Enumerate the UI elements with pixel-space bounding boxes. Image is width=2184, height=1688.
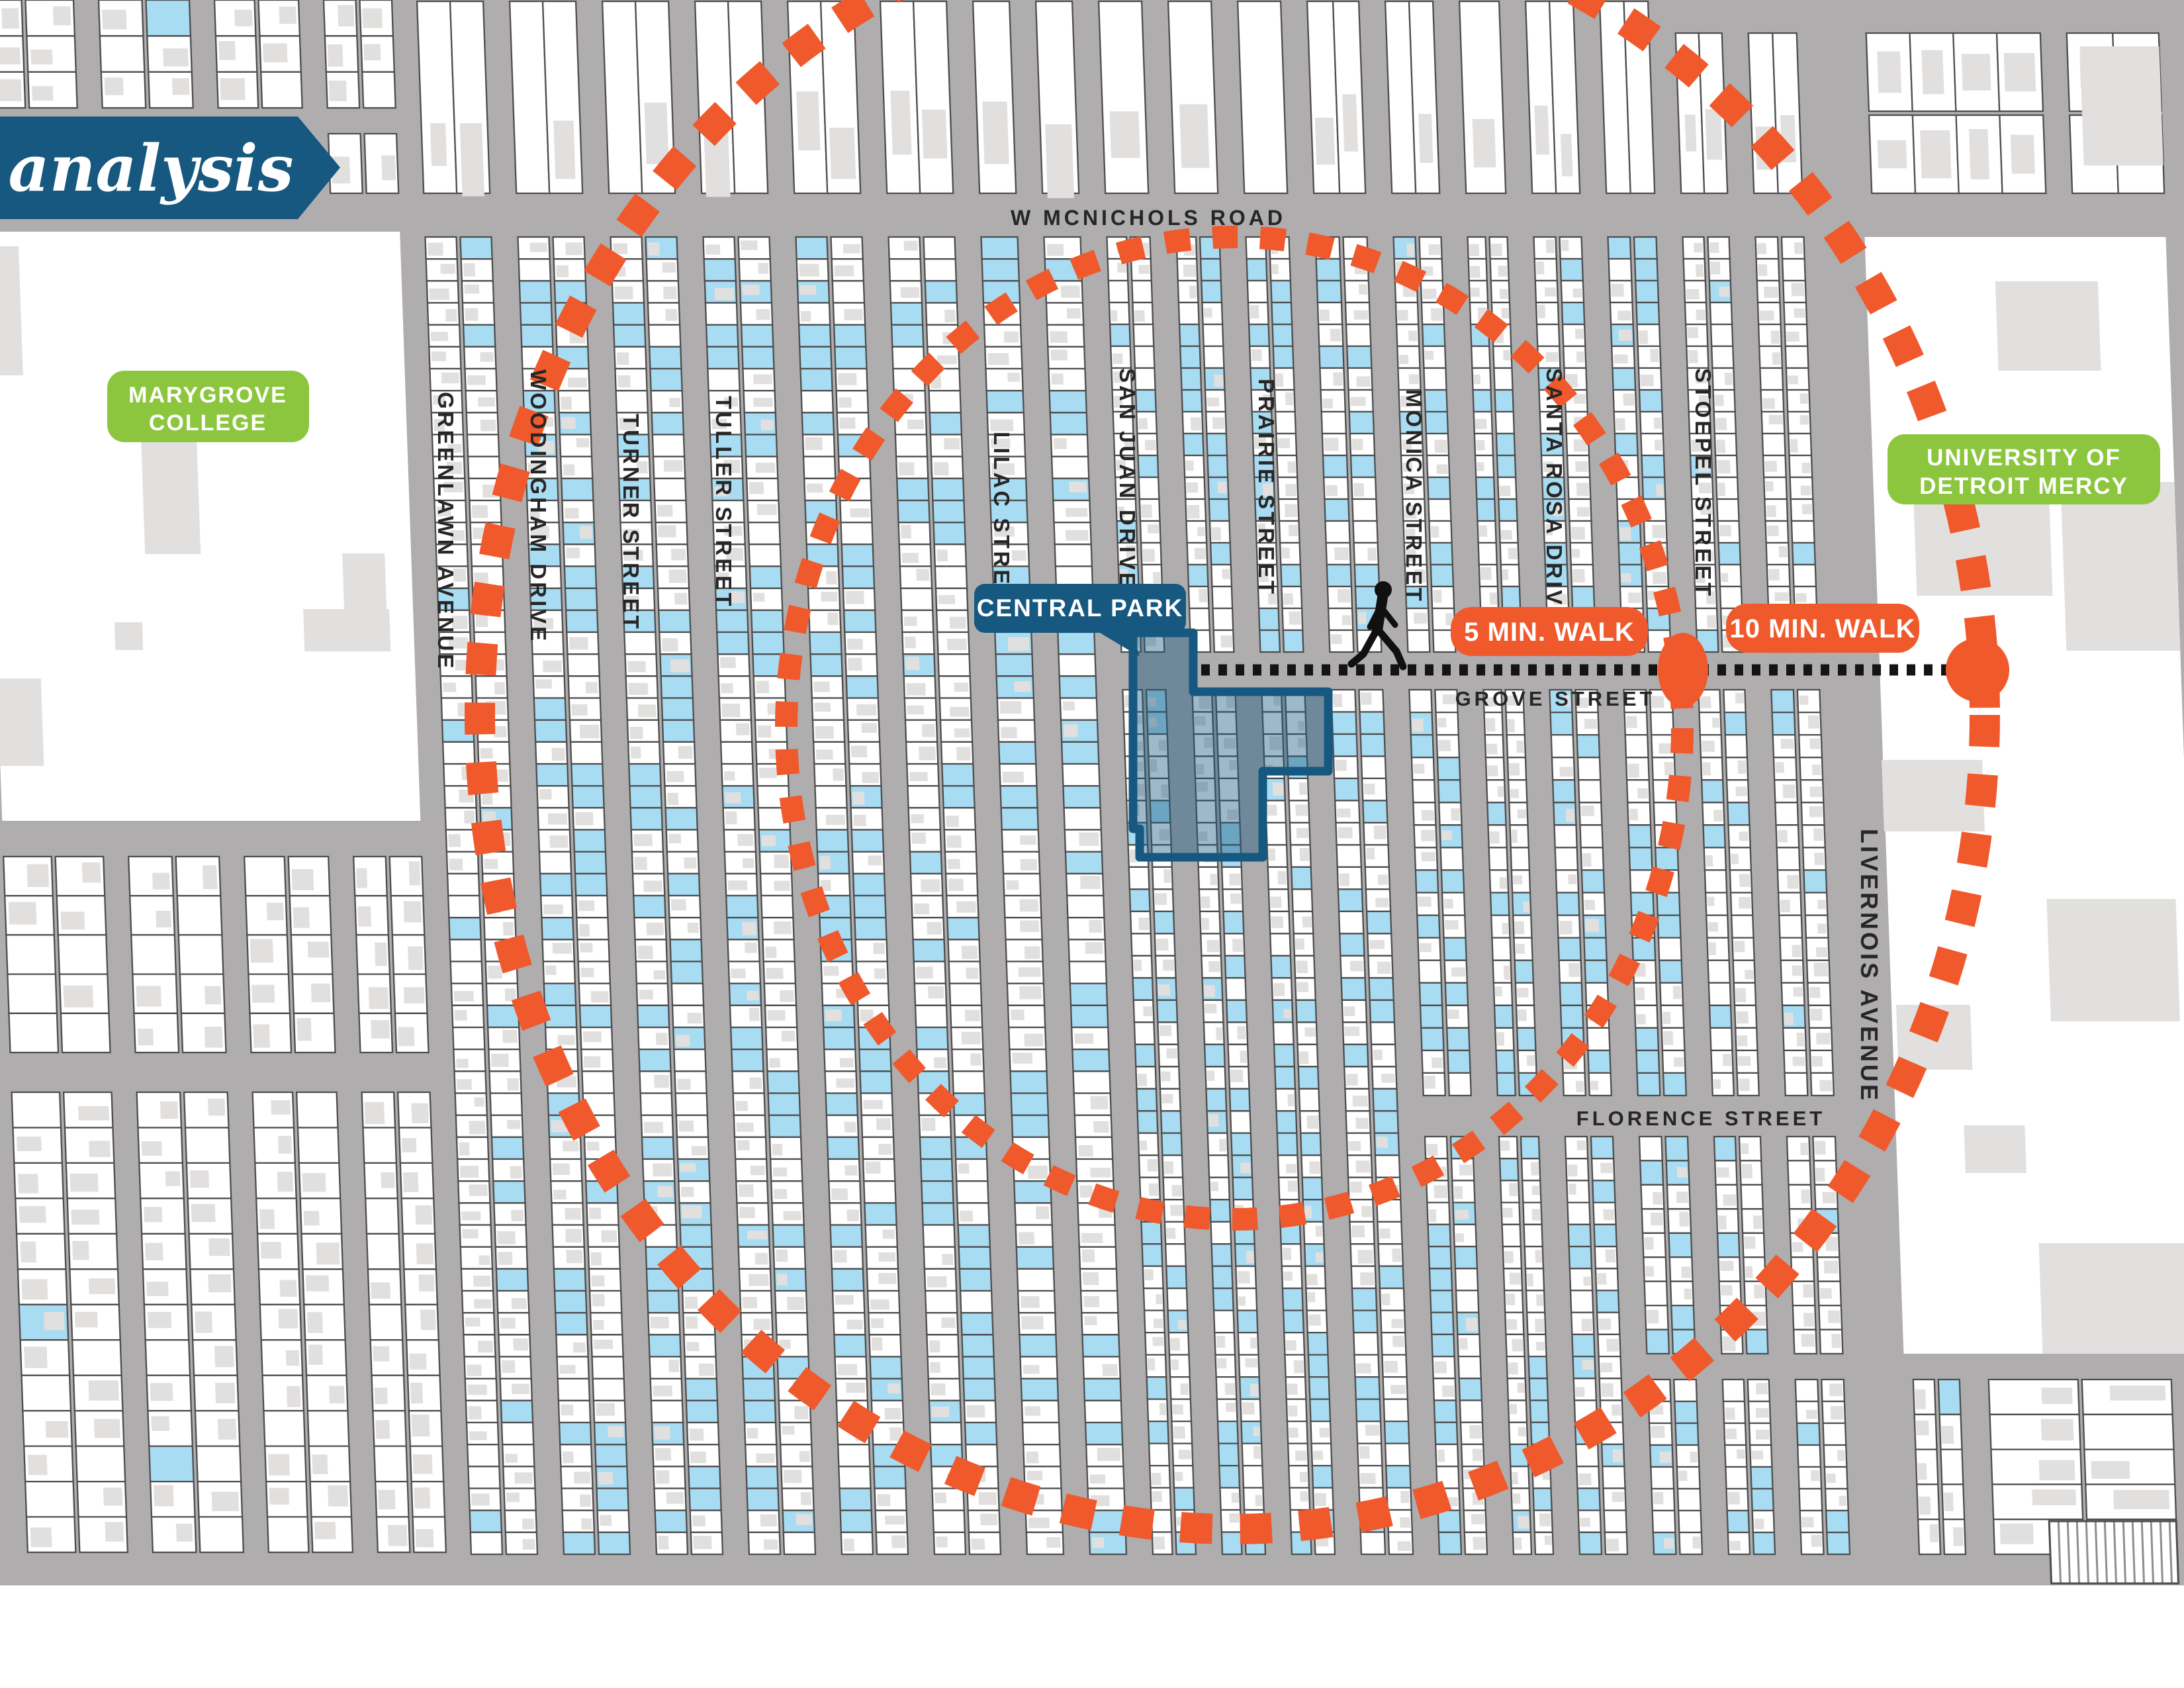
analysis-banner-label: analysis xyxy=(8,131,293,206)
street-label-woodingham: WOODINGHAM DRIVE xyxy=(526,369,551,643)
marygrove-label-line1: MARYGROVE xyxy=(128,383,287,408)
street-label-santarosa: SANTA ROSA DRIVE xyxy=(1542,368,1567,624)
five-min-walk-badge: 5 MIN. WALK xyxy=(1451,607,1648,656)
central-park-label: CENTRAL PARK xyxy=(977,594,1183,622)
five-min-marker xyxy=(1658,633,1708,707)
walkability-analysis-map: W MCNICHOLS ROAD GROVE STREET FLORENCE S… xyxy=(0,0,2184,1688)
street-label-tuller: TULLER STREET xyxy=(711,396,736,609)
street-label-grove: GROVE STREET xyxy=(1455,687,1656,710)
street-label-sanjuan: SAN JUAN DRIVE xyxy=(1115,368,1140,590)
street-label-monica: MONICA STREET xyxy=(1402,389,1426,604)
ten-min-walk-label: 10 MIN. WALK xyxy=(1730,614,1916,643)
street-label-mcnichols: W MCNICHOLS ROAD xyxy=(1011,206,1286,230)
marygrove-label-line2: COLLEGE xyxy=(149,410,267,436)
street-label-livernois: LIVERNOIS AVENUE xyxy=(1856,829,1883,1103)
university-detroit-mercy-label: UNIVERSITY OF DETROIT MERCY xyxy=(1888,434,2160,504)
street-label-florence: FLORENCE STREET xyxy=(1576,1107,1825,1130)
udm-label-line1: UNIVERSITY OF xyxy=(1927,445,2121,471)
udm-label-line2: DETROIT MERCY xyxy=(1919,473,2128,499)
street-label-stoepel: STOEPEL STREET xyxy=(1691,368,1715,598)
analysis-banner: analysis xyxy=(0,117,340,219)
street-label-greenlawn: GREENLAWN AVENUE xyxy=(433,392,458,671)
ten-min-marker xyxy=(1946,638,2009,702)
marygrove-college-label: MARYGROVE COLLEGE xyxy=(107,371,309,442)
five-min-walk-label: 5 MIN. WALK xyxy=(1464,618,1635,647)
street-label-prairie: PRAIRIE STREET xyxy=(1254,379,1279,596)
ten-min-walk-badge: 10 MIN. WALK xyxy=(1726,604,1919,653)
street-label-turner: TURNER STREET xyxy=(619,414,643,632)
